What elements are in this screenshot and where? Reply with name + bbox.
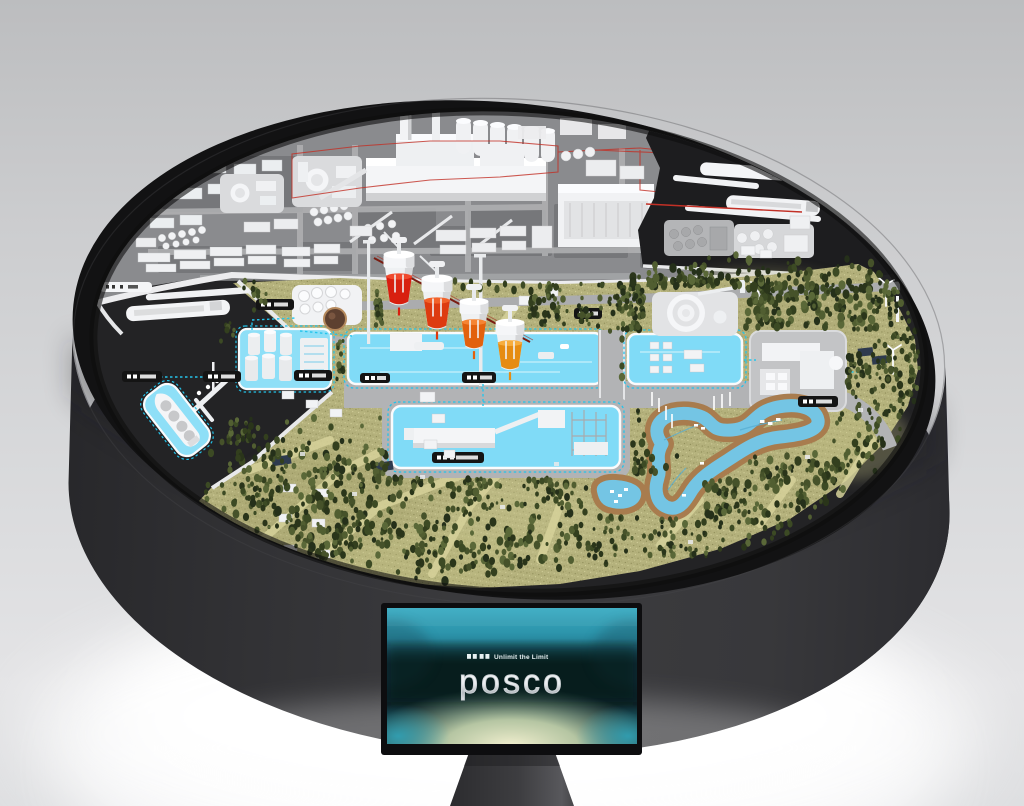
- svg-text:Unlimit the Limit: Unlimit the Limit: [494, 654, 549, 661]
- svg-text:posco: posco: [459, 663, 565, 701]
